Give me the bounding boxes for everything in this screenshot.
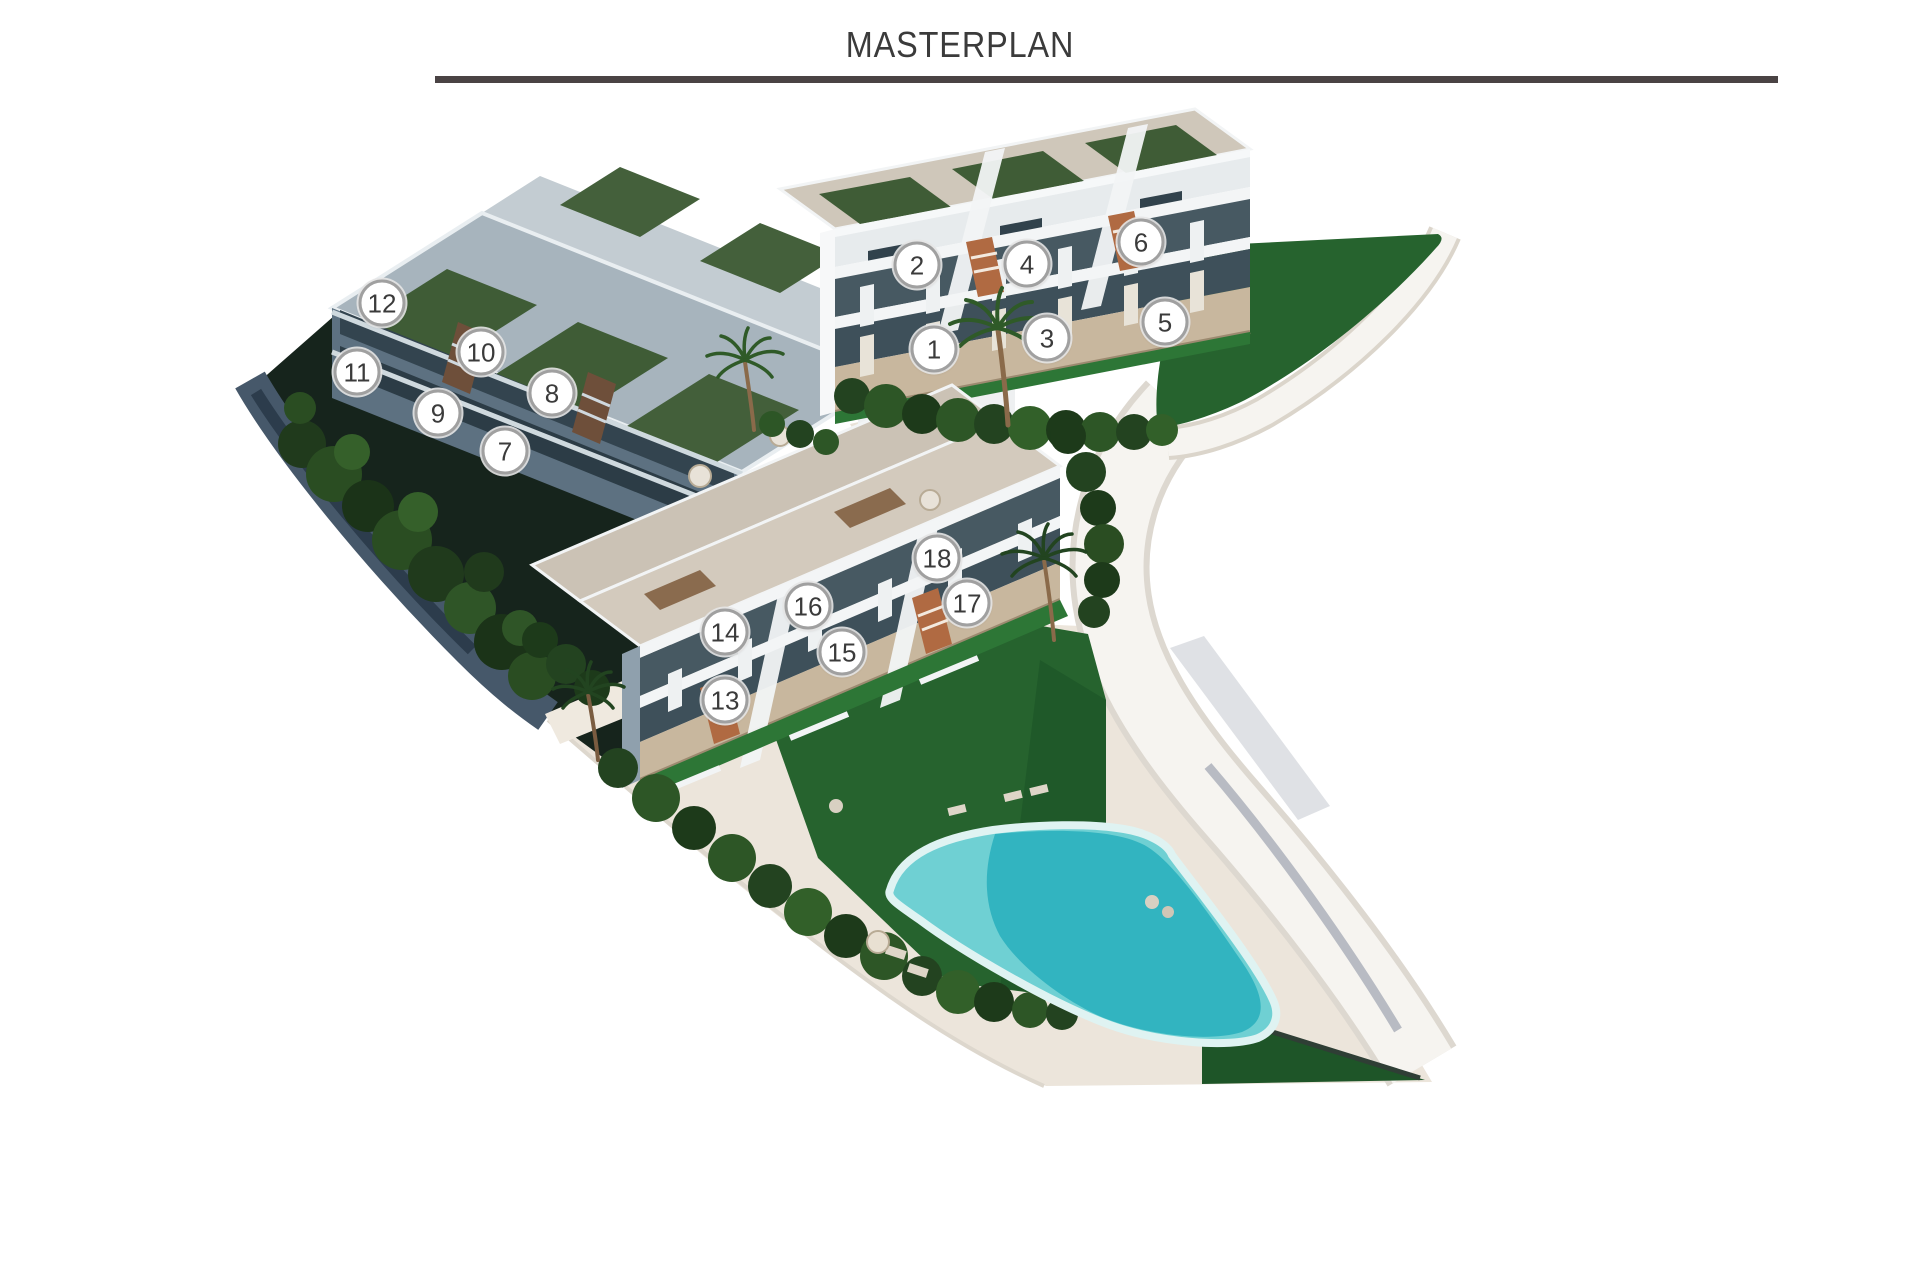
unit-marker-18[interactable]: 18 (914, 535, 961, 582)
unit-marker-16[interactable]: 16 (785, 583, 832, 630)
unit-marker-14[interactable]: 14 (702, 609, 749, 656)
masterplan-rendering (0, 0, 1920, 1280)
masterplan-page: MASTERPLAN (0, 0, 1920, 1280)
unit-marker-3[interactable]: 3 (1024, 315, 1071, 362)
unit-marker-12[interactable]: 12 (359, 280, 406, 327)
unit-marker-15[interactable]: 15 (819, 629, 866, 676)
unit-marker-11[interactable]: 11 (334, 349, 381, 396)
unit-marker-2[interactable]: 2 (894, 242, 941, 289)
unit-marker-10[interactable]: 10 (458, 329, 505, 376)
unit-marker-17[interactable]: 17 (944, 580, 991, 627)
unit-marker-9[interactable]: 9 (415, 390, 462, 437)
unit-marker-7[interactable]: 7 (482, 428, 529, 475)
unit-marker-5[interactable]: 5 (1142, 299, 1189, 346)
unit-marker-8[interactable]: 8 (529, 370, 576, 417)
unit-marker-13[interactable]: 13 (702, 677, 749, 724)
unit-marker-1[interactable]: 1 (911, 326, 958, 373)
unit-marker-6[interactable]: 6 (1118, 219, 1165, 266)
unit-marker-4[interactable]: 4 (1004, 241, 1051, 288)
